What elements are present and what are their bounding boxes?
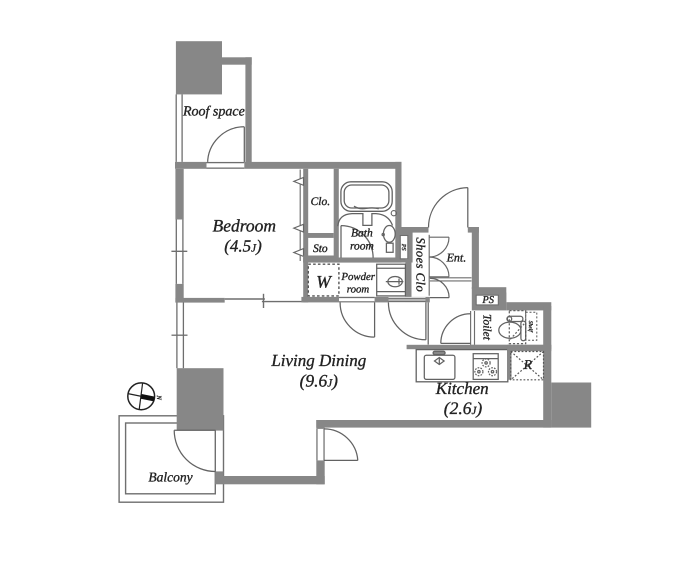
svg-text:room: room	[347, 284, 370, 296]
svg-text:Living Dining: Living Dining	[270, 351, 366, 370]
svg-text:Ent.: Ent.	[446, 250, 467, 264]
svg-text:W: W	[316, 272, 332, 292]
svg-text:Shelf: Shelf	[527, 321, 533, 333]
svg-text:PS: PS	[400, 243, 406, 251]
svg-text:Clo.: Clo.	[311, 196, 331, 208]
svg-text:R: R	[523, 357, 533, 372]
svg-text:Powder: Powder	[340, 271, 375, 283]
svg-text:N: N	[155, 394, 162, 400]
svg-text:PS: PS	[481, 295, 494, 306]
svg-text:Shoes Clo: Shoes Clo	[413, 237, 427, 292]
svg-text:Roof space: Roof space	[182, 105, 245, 120]
svg-text:(2.6J): (2.6J)	[444, 398, 483, 418]
svg-text:Kitchen: Kitchen	[435, 379, 489, 398]
svg-text:Sto: Sto	[313, 243, 328, 255]
svg-text:Bath: Bath	[351, 228, 373, 240]
svg-text:(4.5J): (4.5J)	[224, 237, 262, 256]
svg-text:Balcony: Balcony	[148, 470, 192, 485]
svg-text:Toilet: Toilet	[481, 314, 493, 341]
svg-text:(9.6J): (9.6J)	[300, 370, 339, 390]
svg-text:room: room	[350, 241, 374, 253]
svg-text:Bedroom: Bedroom	[213, 215, 277, 235]
